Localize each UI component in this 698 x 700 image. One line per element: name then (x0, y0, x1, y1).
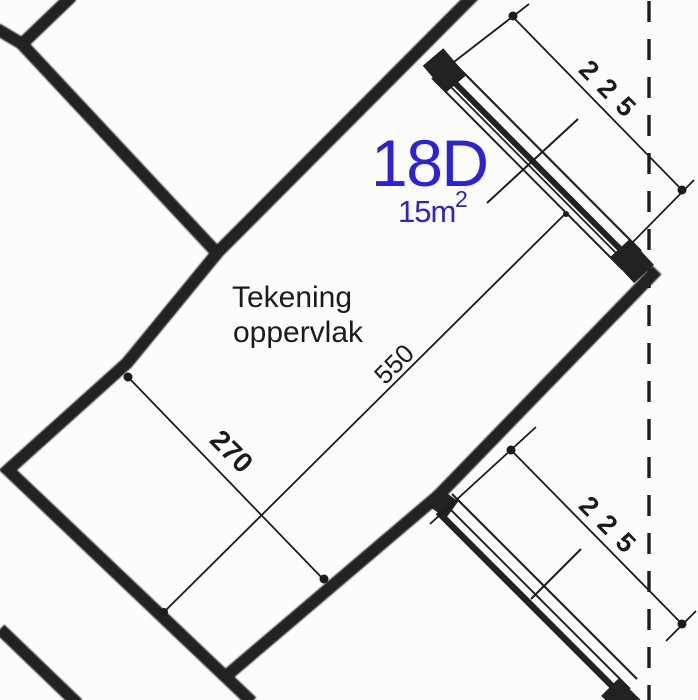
svg-text:18D: 18D (371, 126, 488, 200)
svg-text:15m: 15m (398, 194, 455, 229)
svg-text:oppervlak: oppervlak (233, 316, 364, 349)
svg-text:2: 2 (455, 186, 468, 212)
svg-text:Tekening: Tekening (232, 281, 352, 314)
